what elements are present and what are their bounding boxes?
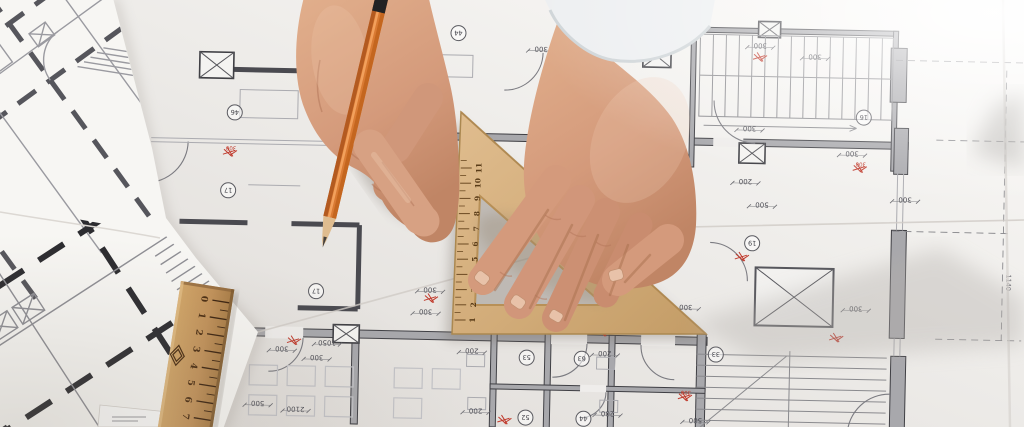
photo-stage: 3003002003003003003002003009003003003003… [0,0,1024,427]
vignette-bottom-left [0,0,1024,427]
architect-hands-blueprint-photo: 3003002003003003003002003009003003003003… [0,0,1024,427]
lighting-overlays [0,0,1024,427]
